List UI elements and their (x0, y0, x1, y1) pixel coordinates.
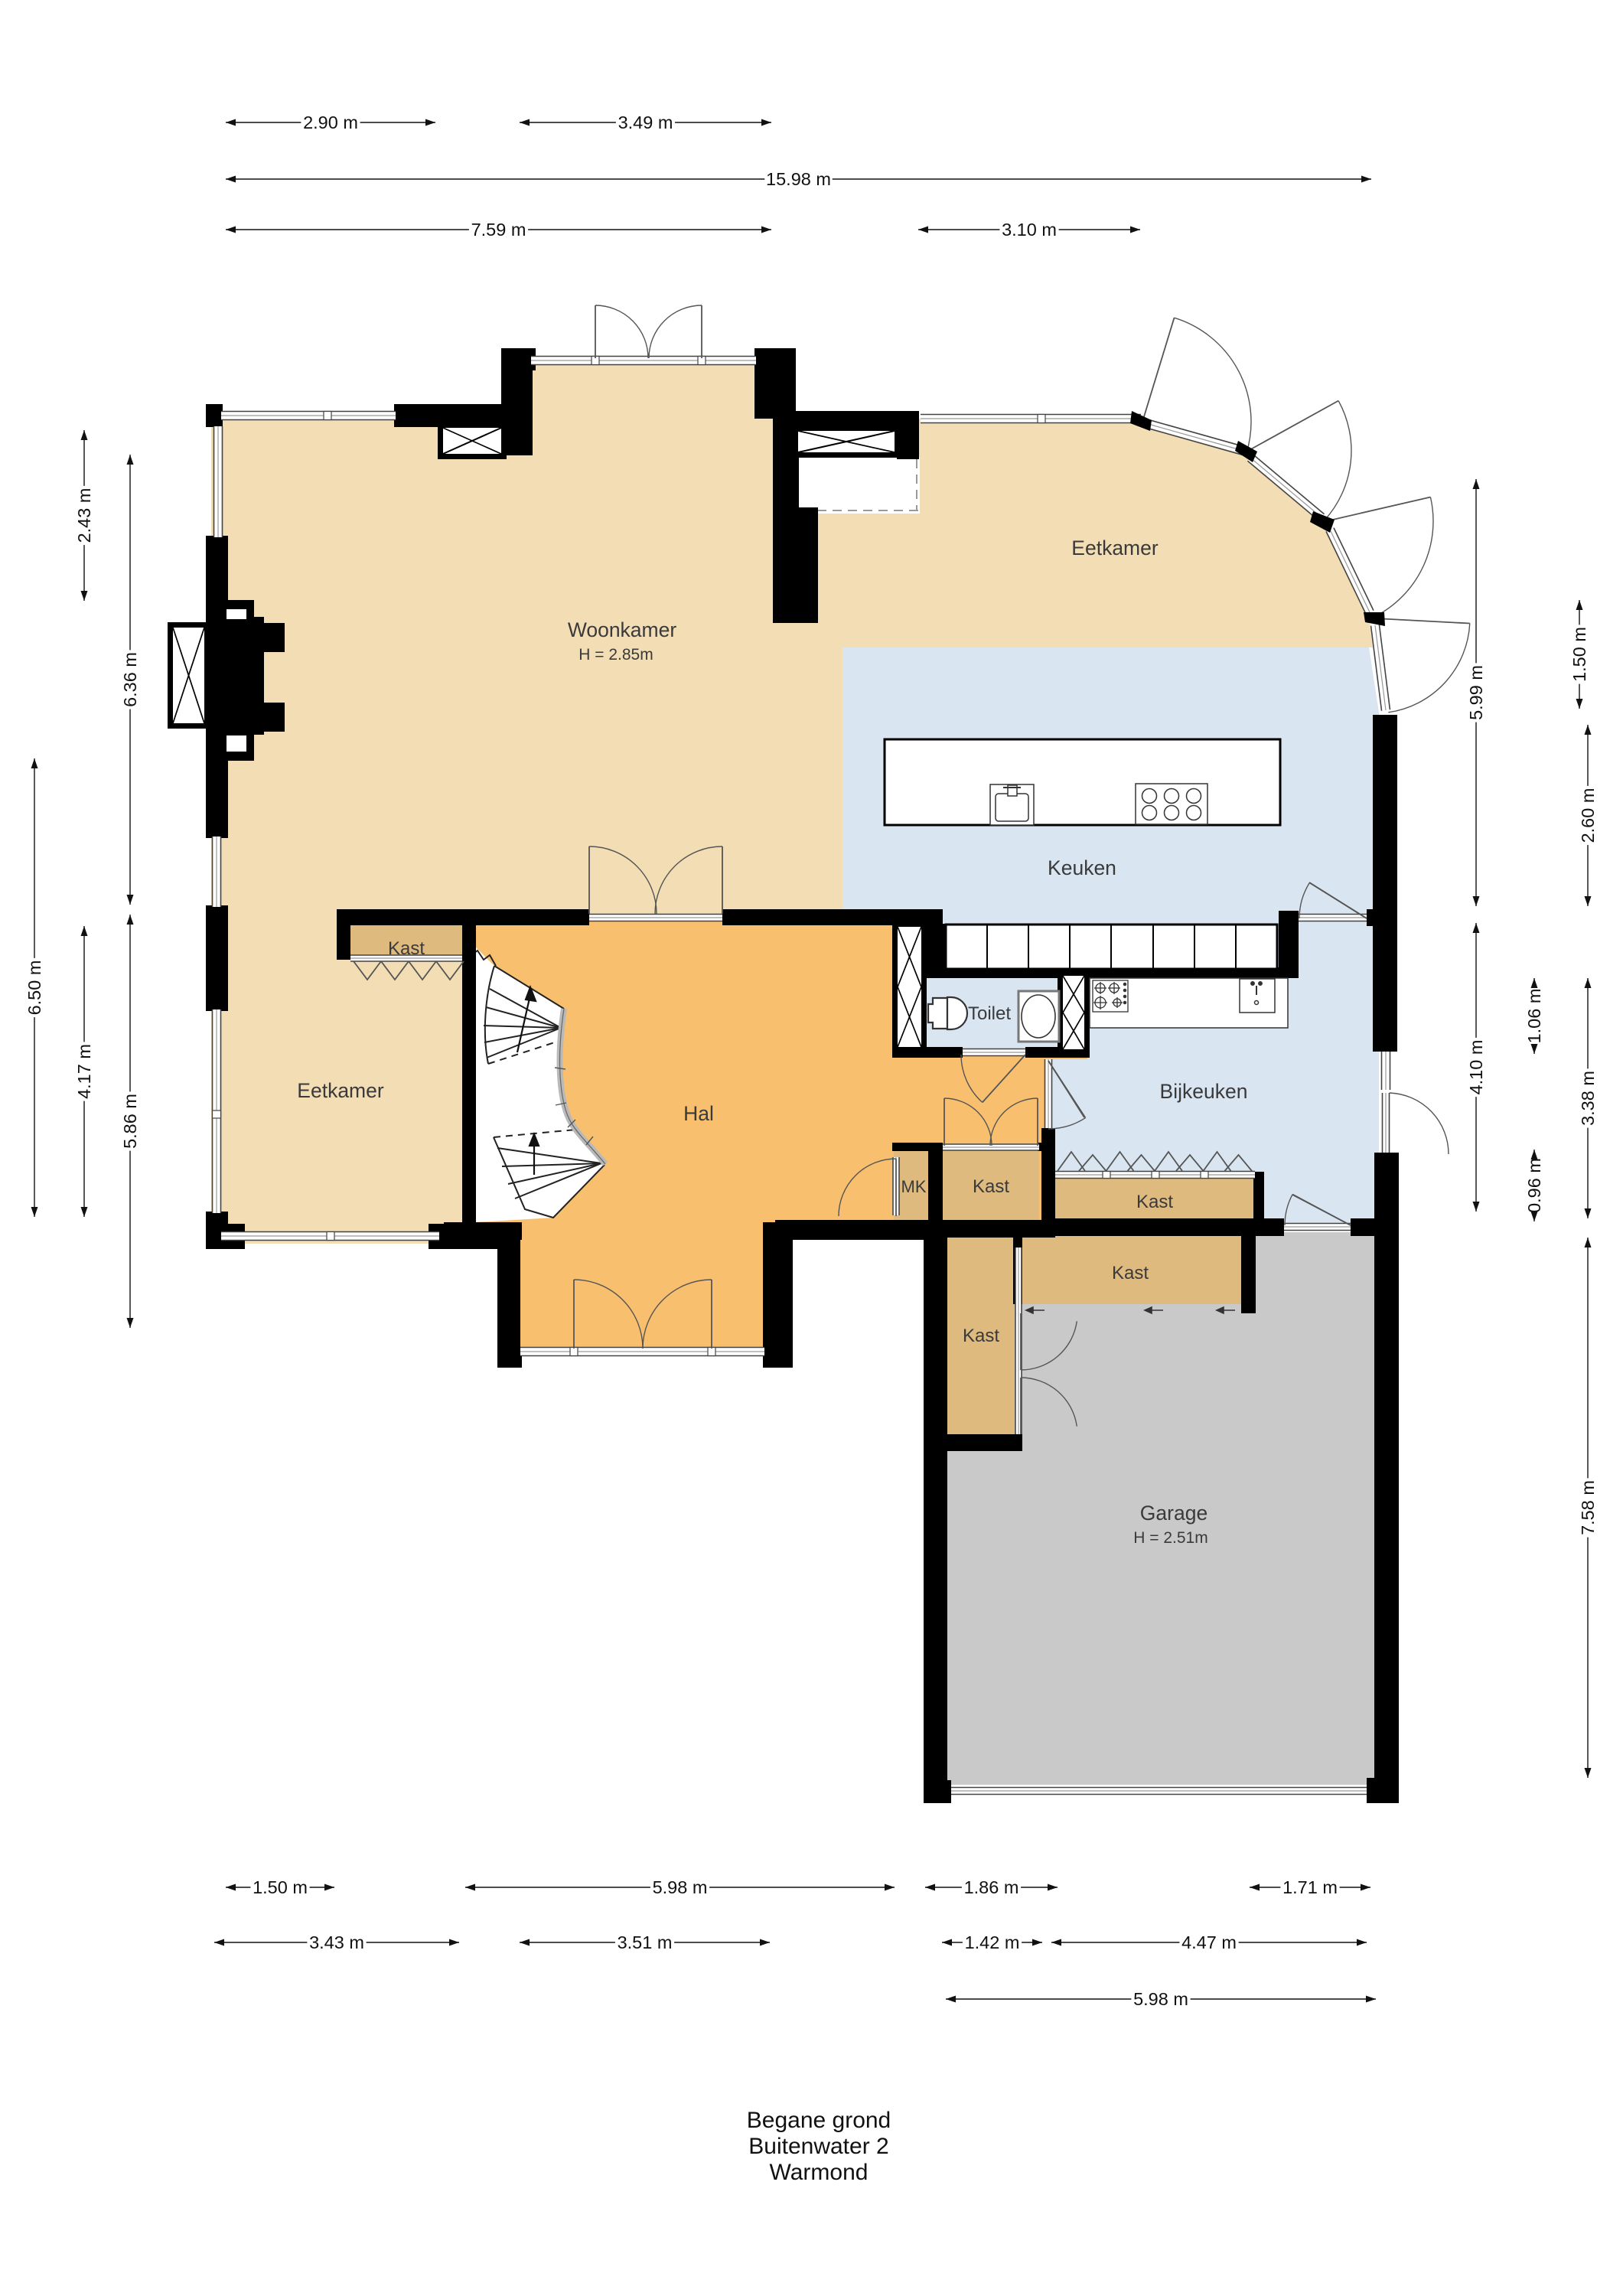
svg-text:4.10 m: 4.10 m (1466, 1040, 1486, 1095)
svg-text:7.59 m: 7.59 m (471, 220, 526, 240)
svg-text:Kast: Kast (973, 1176, 1009, 1197)
svg-text:H = 2.51m: H = 2.51m (1133, 1529, 1207, 1547)
svg-text:Bijkeuken: Bijkeuken (1160, 1080, 1248, 1103)
svg-text:7.58 m: 7.58 m (1578, 1480, 1598, 1535)
svg-text:2.60 m: 2.60 m (1578, 788, 1598, 843)
svg-text:5.86 m: 5.86 m (120, 1094, 140, 1149)
svg-text:Eetkamer: Eetkamer (297, 1079, 384, 1102)
svg-text:Kast: Kast (963, 1326, 999, 1346)
svg-text:4.47 m: 4.47 m (1181, 1932, 1237, 1952)
svg-text:1.71 m: 1.71 m (1282, 1877, 1338, 1897)
svg-text:5.98 m: 5.98 m (1133, 1989, 1188, 2009)
svg-text:3.43 m: 3.43 m (309, 1932, 364, 1952)
svg-text:2.90 m: 2.90 m (303, 113, 358, 132)
svg-text:1.86 m: 1.86 m (964, 1877, 1019, 1897)
svg-text:3.49 m: 3.49 m (618, 113, 673, 132)
svg-text:1.06 m: 1.06 m (1524, 989, 1544, 1044)
svg-text:1.42 m: 1.42 m (965, 1932, 1020, 1952)
svg-text:Buitenwater 2: Buitenwater 2 (748, 2134, 888, 2159)
svg-text:1.50 m: 1.50 m (253, 1877, 308, 1897)
svg-text:3.38 m: 3.38 m (1578, 1071, 1598, 1126)
svg-text:1.50 m: 1.50 m (1569, 627, 1589, 682)
svg-text:Woonkamer: Woonkamer (568, 618, 677, 641)
svg-text:Begane grond: Begane grond (747, 2108, 891, 2133)
svg-text:Garage: Garage (1140, 1502, 1207, 1525)
svg-text:MK: MK (901, 1177, 927, 1196)
svg-text:3.51 m: 3.51 m (618, 1932, 673, 1952)
svg-text:4.17 m: 4.17 m (74, 1044, 94, 1099)
svg-text:Keuken: Keuken (1048, 856, 1116, 879)
svg-text:5.99 m: 5.99 m (1466, 665, 1486, 720)
svg-text:5.98 m: 5.98 m (653, 1877, 708, 1897)
svg-text:0.96 m: 0.96 m (1524, 1158, 1544, 1213)
svg-text:Hal: Hal (683, 1102, 714, 1125)
svg-text:Kast: Kast (388, 938, 425, 959)
svg-text:Toilet: Toilet (968, 1003, 1011, 1024)
svg-text:15.98 m: 15.98 m (766, 169, 831, 189)
svg-text:2.43 m: 2.43 m (74, 488, 94, 543)
svg-text:Warmond: Warmond (770, 2160, 869, 2185)
svg-text:6.50 m: 6.50 m (24, 960, 44, 1016)
svg-text:Eetkamer: Eetkamer (1071, 536, 1159, 559)
svg-text:6.36 m: 6.36 m (120, 652, 140, 707)
svg-text:3.10 m: 3.10 m (1002, 220, 1057, 240)
svg-text:H = 2.85m: H = 2.85m (578, 646, 653, 664)
svg-text:Kast: Kast (1112, 1263, 1149, 1283)
svg-text:Kast: Kast (1136, 1192, 1173, 1212)
